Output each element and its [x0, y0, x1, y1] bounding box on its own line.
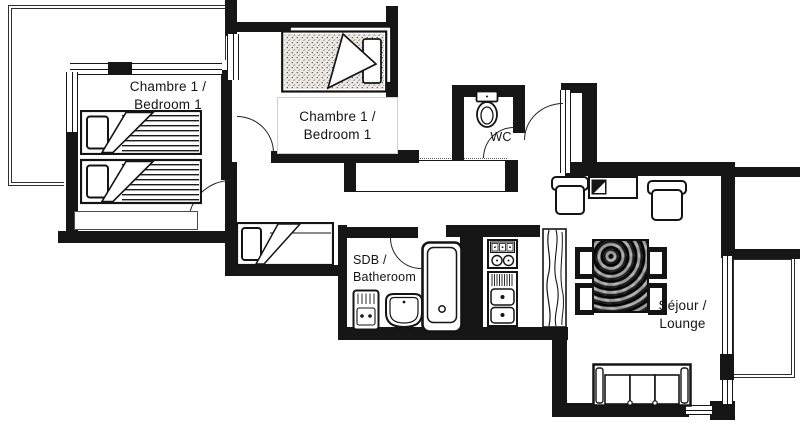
- wall: [733, 167, 800, 177]
- window: [722, 378, 733, 404]
- bedroom-a-label: Chambre 1 / Bedroom 1: [108, 78, 228, 114]
- bedroom-b-label-line2: Bedroom 1: [278, 126, 397, 144]
- armchair-icon: [647, 180, 687, 222]
- wall: [513, 85, 525, 133]
- lounge-label-line1: Séjour /: [645, 297, 720, 315]
- armchair-icon: [551, 176, 589, 216]
- chair: [648, 247, 667, 279]
- sofa-icon: [592, 363, 692, 407]
- single-bed-icon: [281, 26, 393, 94]
- wall: [338, 227, 418, 238]
- door-arc-entrance: [524, 103, 563, 140]
- window: [70, 63, 222, 75]
- dining-table: [592, 239, 649, 313]
- rug: [74, 211, 198, 230]
- single-bed-icon: [236, 222, 334, 266]
- bathroom-unit-icon: [352, 289, 380, 331]
- bathroom-label-line1: SDB /: [353, 252, 433, 269]
- lounge-label-line2: Lounge: [645, 315, 720, 333]
- wall: [225, 265, 347, 276]
- floor-plan: Chambre 1 / Bedroom 1 Chambre 1 / Bedroo…: [0, 0, 800, 426]
- bedroom-a-label-line1: Chambre 1 /: [108, 78, 228, 96]
- toilet-icon: [474, 90, 500, 130]
- wall: [58, 231, 234, 243]
- chair: [575, 283, 594, 315]
- window-pier: [108, 62, 132, 74]
- door-arc-bedroom-b: [237, 116, 274, 153]
- window: [227, 34, 239, 80]
- single-bed-icon: [80, 158, 202, 205]
- wall: [460, 237, 483, 329]
- hall-wardrobe: [344, 160, 518, 192]
- window-pier: [720, 354, 734, 380]
- tall-cabinet-icon: [542, 228, 567, 328]
- window: [722, 256, 733, 356]
- window: [66, 72, 78, 132]
- bedroom-b-label-box: Chambre 1 / Bedroom 1: [277, 97, 398, 154]
- wall: [452, 85, 464, 160]
- bathroom-label-line2: Batheroom: [353, 269, 433, 286]
- wall: [721, 170, 735, 258]
- wall: [446, 225, 540, 237]
- wc-label: WC: [484, 129, 518, 146]
- washbasin-icon: [382, 291, 426, 331]
- stove-icon: [487, 239, 518, 269]
- bedroom-b-label-line1: Chambre 1 /: [278, 108, 397, 126]
- wall: [733, 249, 800, 259]
- bedroom-b-label: Chambre 1 / Bedroom 1: [278, 108, 397, 144]
- wall: [505, 160, 517, 192]
- lounge-label: Séjour / Lounge: [645, 297, 720, 333]
- bedroom-a-label-line2: Bedroom 1: [108, 96, 228, 114]
- bathroom-label: SDB / Batheroom: [353, 252, 433, 285]
- single-bed-icon: [80, 110, 202, 155]
- chair: [575, 247, 594, 279]
- kitchen-sink-icon: [487, 271, 518, 327]
- tv-unit-icon: [588, 176, 638, 199]
- wall: [344, 160, 356, 192]
- wall: [338, 225, 347, 340]
- balcony-rail-bottom-right: [730, 256, 795, 378]
- wall: [582, 92, 597, 173]
